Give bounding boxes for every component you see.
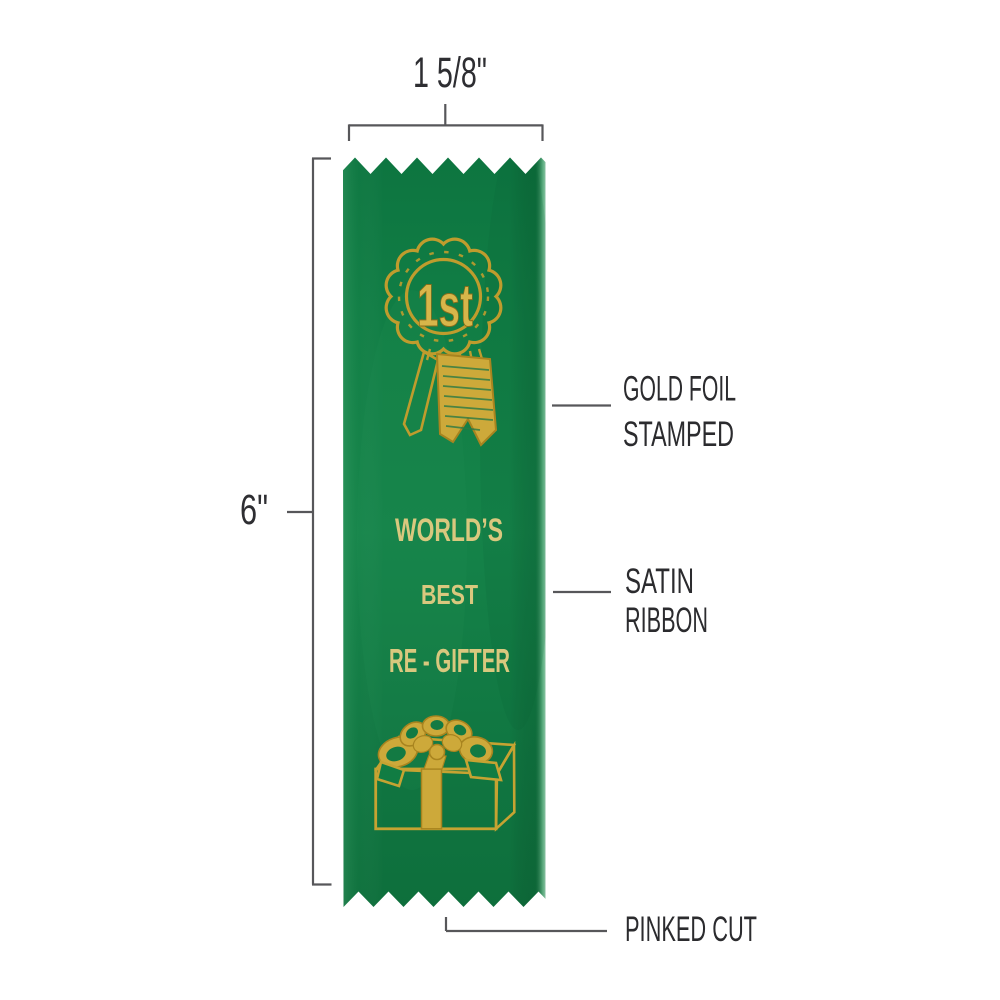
svg-text:RIBBON: RIBBON — [625, 601, 708, 640]
svg-text:1 5/8": 1 5/8" — [413, 49, 487, 97]
svg-text:6": 6" — [240, 486, 268, 534]
svg-text:1st: 1st — [417, 272, 473, 339]
svg-text:BEST: BEST — [421, 579, 478, 610]
svg-text:SATIN: SATIN — [625, 562, 694, 601]
svg-text:WORLD’S: WORLD’S — [395, 512, 503, 548]
svg-text:PINKED CUT: PINKED CUT — [625, 910, 757, 949]
svg-text:RE - GIFTER: RE - GIFTER — [389, 642, 510, 679]
svg-text:STAMPED: STAMPED — [623, 415, 734, 454]
svg-text:GOLD FOIL: GOLD FOIL — [623, 370, 736, 409]
